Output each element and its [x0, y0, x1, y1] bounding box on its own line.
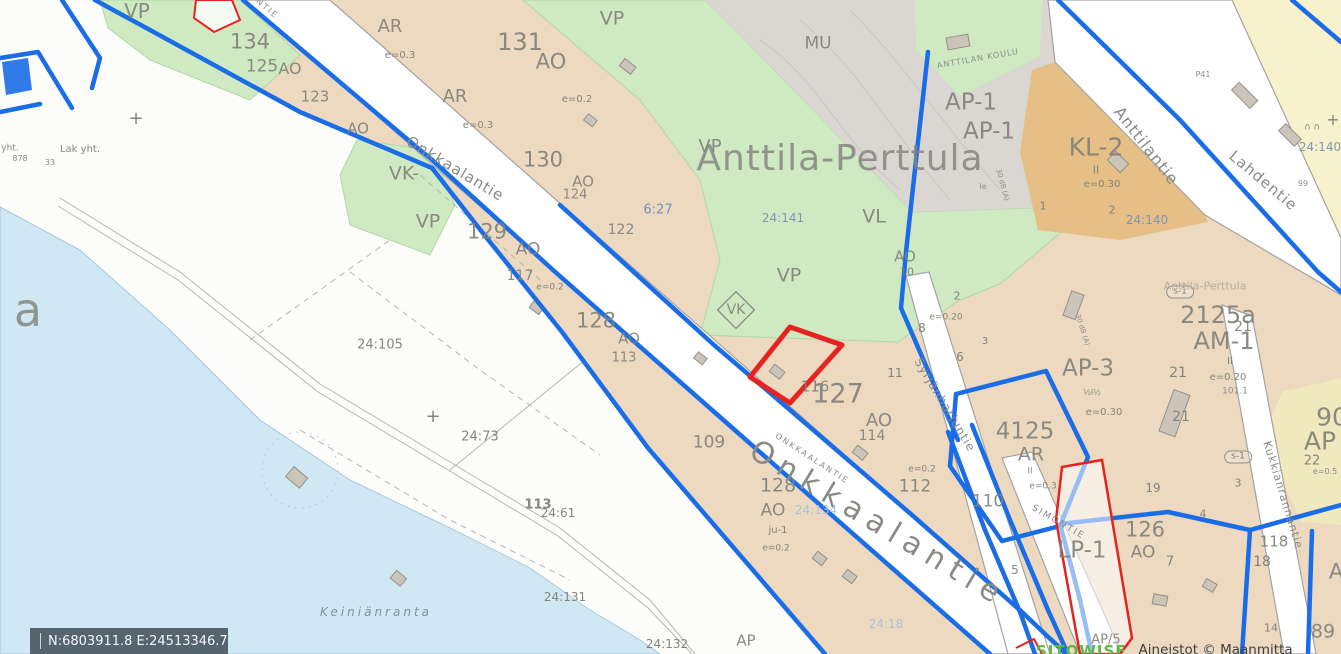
plan-symbol-blue-block	[2, 58, 32, 95]
statusbar-divider	[40, 633, 41, 649]
coordinate-text: N:6803911.8 E:24513346.7	[48, 634, 228, 649]
coordinate-readout: N:6803911.8 E:24513346.7	[30, 628, 228, 654]
map-attribution: SITOWISE Aineistot © Maanmitta	[1036, 642, 1293, 654]
map-graphics	[0, 0, 1341, 654]
sitowise-logo: SITOWISE	[1036, 642, 1127, 654]
attribution-text: Aineistot © Maanmitta	[1139, 642, 1293, 654]
map-viewport[interactable]: VP134125AO123AOARe=0.3ARe=0.3131AOe=0.2V…	[0, 0, 1341, 654]
